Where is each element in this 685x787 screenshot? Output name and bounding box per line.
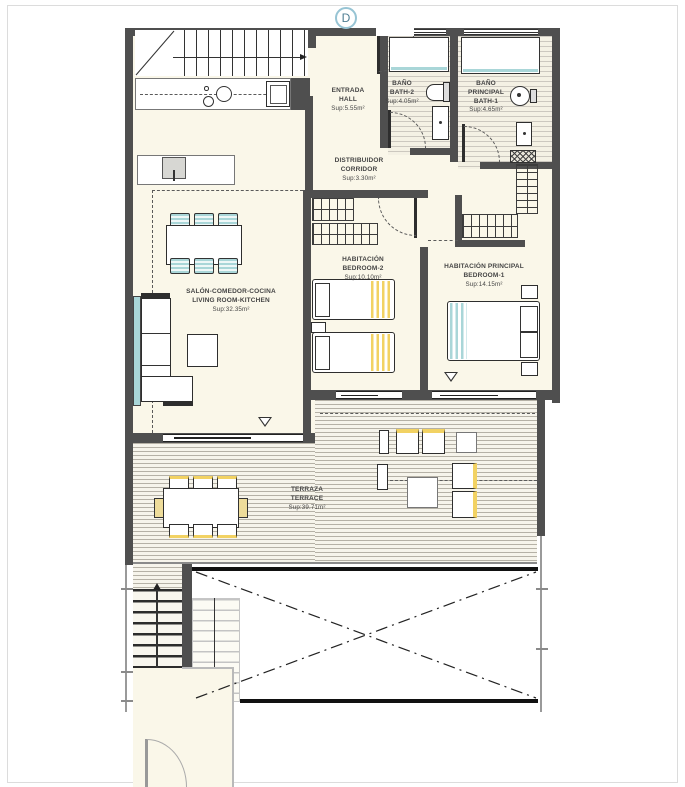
lounge-chair — [452, 491, 477, 518]
wardrobe — [462, 214, 518, 238]
cooktop-knob-icon — [204, 86, 209, 91]
toilet-tank-icon — [443, 82, 450, 102]
room-label-living: SALÓN-COMEDOR-COCINALIVING ROOM-KITCHEN … — [184, 288, 278, 314]
wall — [420, 247, 428, 390]
bedroom2-sliding-door — [336, 391, 402, 399]
toilet-tank-icon — [530, 89, 537, 103]
wall — [450, 36, 458, 162]
lounge-chair — [377, 464, 388, 490]
staircase-landing — [135, 30, 173, 76]
sofa-armrest — [163, 401, 193, 406]
section-marker-icon — [260, 418, 270, 425]
lower-room-wall — [232, 668, 234, 787]
wall — [410, 148, 450, 155]
kitchen-sink-icon — [266, 81, 290, 107]
tick-mark — [536, 648, 548, 650]
sink-icon — [432, 106, 449, 140]
dining-chair — [170, 258, 190, 274]
room-label-hall: ENTRADAHALL Sup:5.55m² — [316, 87, 380, 113]
bed-blanket — [371, 334, 391, 371]
shower — [461, 37, 540, 74]
sofa-back — [133, 296, 141, 406]
room-label-bedroom2: HABITACIÓNBEDROOM-2 Sup:10.10m² — [329, 256, 397, 282]
wall — [537, 400, 545, 536]
stair-arrow-line — [173, 57, 301, 58]
wall — [455, 240, 525, 247]
dining-chair — [194, 258, 214, 274]
cooktop-burner-icon — [216, 86, 232, 102]
stair-arrow-icon — [300, 54, 307, 60]
entrance-opening — [376, 28, 414, 36]
void-bottom-edge — [240, 699, 538, 703]
shower — [389, 37, 449, 72]
bed-blanket — [371, 281, 391, 318]
wall — [303, 198, 311, 440]
stair-up-arrow-icon — [153, 583, 161, 590]
bed-single — [312, 332, 395, 373]
side-table — [407, 477, 438, 508]
void-top-edge — [192, 567, 538, 571]
installation-shaft — [510, 150, 536, 163]
room-label-terrace: TERRAZATERRACE Sup:39.71m² — [275, 486, 339, 512]
tick-mark — [121, 700, 133, 702]
ceiling-change-line — [152, 190, 303, 191]
lounge-chair — [379, 430, 389, 454]
bedroom1-entry-dashed — [428, 240, 458, 241]
section-d-marker: D — [335, 7, 357, 29]
wall — [291, 78, 310, 110]
outdoor-table — [163, 488, 239, 528]
bed-blanket — [450, 303, 467, 359]
counter-centerline — [140, 94, 286, 95]
wall — [552, 28, 560, 403]
wardrobe — [516, 164, 538, 214]
bath1-window — [464, 29, 538, 35]
cooktop-burner-icon — [203, 96, 214, 107]
kitchen-island — [137, 155, 235, 185]
tick-mark — [121, 671, 133, 673]
outdoor-chair — [217, 524, 237, 538]
sink-icon — [516, 122, 532, 146]
nightstand — [521, 362, 538, 376]
outdoor-bench — [238, 498, 248, 518]
wall — [125, 28, 133, 565]
toilet-icon — [426, 84, 444, 101]
terrace-edge-line — [133, 562, 537, 564]
wall — [308, 28, 316, 48]
tick-mark — [536, 588, 548, 590]
lounge-chair — [422, 429, 445, 454]
lounge-chair — [396, 429, 419, 454]
room-label-bedroom1: HABITACIÓN PRINCIPALBEDROOM-1 Sup:14.15m… — [442, 263, 526, 289]
bed-double — [447, 301, 540, 361]
lounge-chair — [452, 463, 477, 489]
room-label-corridor: DISTRIBUIDORCORRIDOR Sup:3.30m² — [325, 157, 393, 183]
section-marker-icon — [446, 373, 456, 380]
wardrobe — [312, 198, 354, 221]
wall — [303, 190, 428, 198]
dining-chair — [218, 258, 238, 274]
side-table — [456, 432, 477, 453]
staircase-lower — [133, 589, 182, 671]
room-label-bath1: BAÑO PRINCIPALBATH-1 Sup:4.65m² — [458, 80, 514, 115]
bed-single — [312, 279, 395, 320]
wardrobe — [312, 223, 378, 245]
stair-arrow-line — [156, 589, 158, 671]
sofa-chaise — [141, 376, 193, 402]
reference-line — [540, 536, 542, 712]
coffee-table — [187, 334, 218, 367]
living-sliding-door — [163, 434, 303, 442]
terrace-zone-line — [320, 413, 535, 414]
lower-room-wall — [182, 667, 234, 669]
island-tap-icon — [173, 170, 175, 181]
staircase-upper — [173, 30, 308, 76]
room-label-bath2: BAÑOBATH-2 Sup:4.05m² — [377, 80, 427, 106]
outdoor-chair — [169, 524, 189, 538]
floor-plan: ENTRADAHALL Sup:5.55m² BAÑOBATH-2 Sup:4.… — [0, 0, 685, 787]
wall — [305, 96, 313, 195]
tick-mark — [121, 588, 133, 590]
bedroom1-sliding-door — [432, 391, 536, 399]
outdoor-chair — [193, 524, 213, 538]
